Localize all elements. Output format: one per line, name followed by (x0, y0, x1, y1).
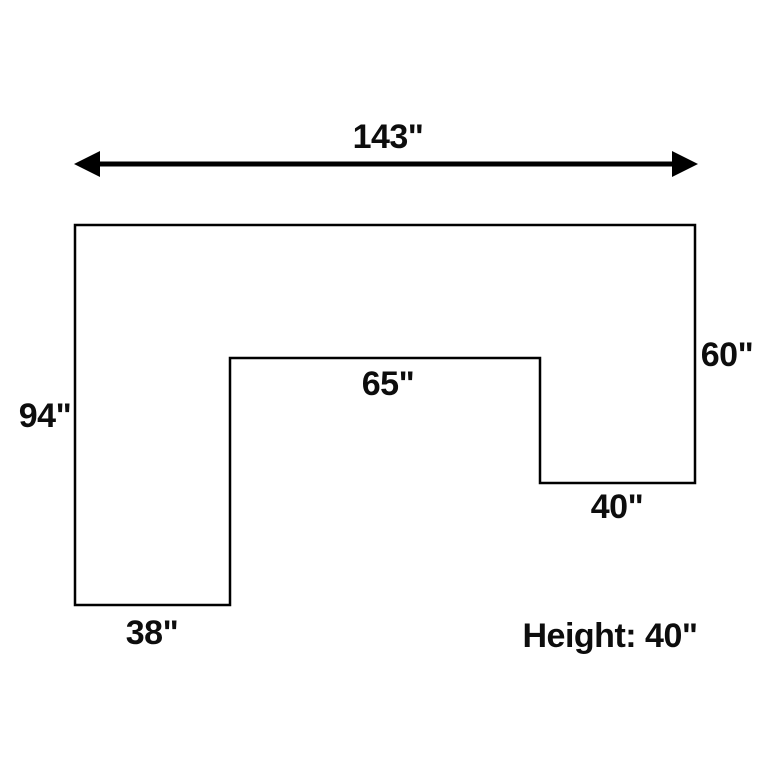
footprint-outline (75, 225, 695, 605)
dimension-label-right-height: 60" (701, 338, 753, 372)
dimension-label-left-height: 94" (19, 399, 71, 433)
dimension-label-inner-width: 65" (362, 367, 414, 401)
arrowhead-left-icon (74, 151, 100, 177)
dimension-label-right-arm-width: 40" (591, 490, 643, 524)
arrowhead-right-icon (672, 151, 698, 177)
dimension-diagram: 143" 94" 60" 65" 40" 38" Height: 40" (0, 0, 775, 775)
dimension-label-left-leg-width: 38" (126, 616, 178, 650)
dimension-label-total-width: 143" (353, 120, 424, 154)
dimension-label-height-note: Height: 40" (523, 619, 698, 653)
